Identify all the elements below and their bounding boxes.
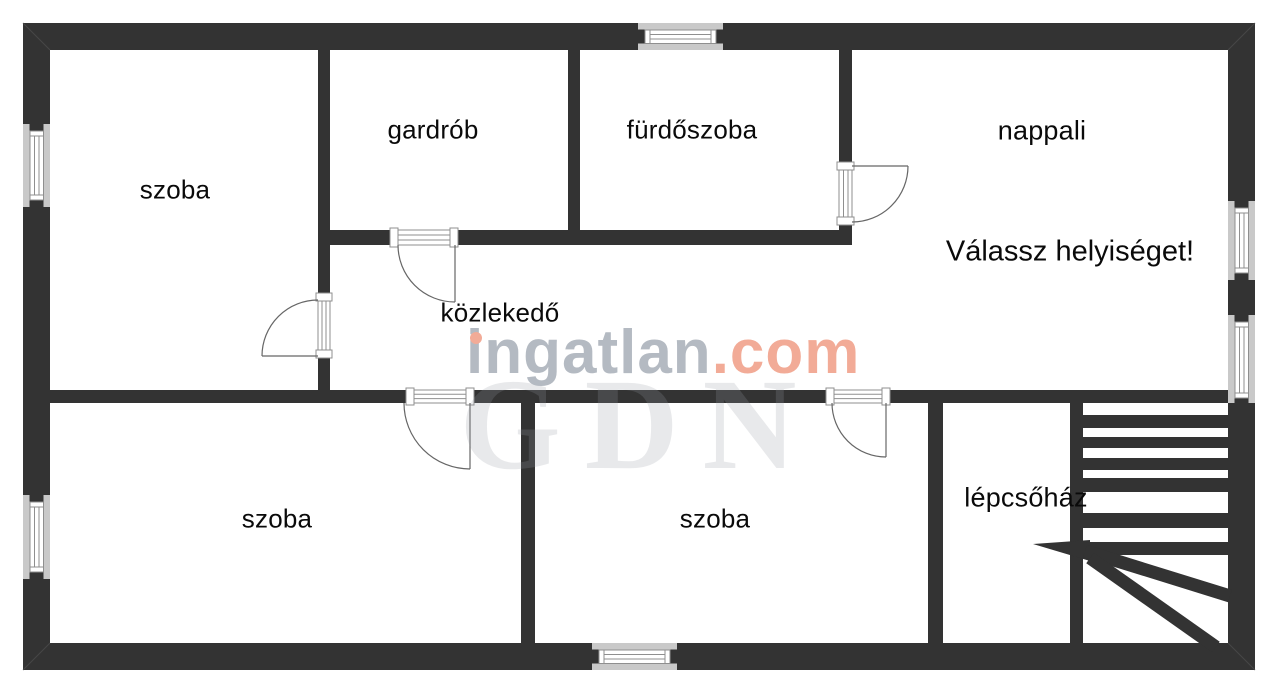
door-frame bbox=[406, 388, 474, 405]
window-icon bbox=[638, 23, 723, 50]
floorplan-drawing bbox=[0, 0, 1280, 695]
choose-room-prompt: Válassz helyiséget! bbox=[946, 236, 1194, 269]
room-label-szoba-bottom-middle[interactable]: szoba bbox=[680, 504, 750, 535]
door-frame bbox=[316, 293, 332, 358]
staircase-icon bbox=[1033, 415, 1230, 647]
door-frame bbox=[826, 388, 890, 405]
room-label-gardrob[interactable]: gardrób bbox=[387, 115, 478, 146]
window-icon bbox=[1228, 315, 1255, 403]
window-icon bbox=[592, 643, 677, 670]
door-frame bbox=[837, 162, 854, 225]
door-swing-arcs bbox=[262, 166, 908, 469]
window-icon bbox=[23, 124, 50, 207]
window-icon bbox=[23, 495, 50, 579]
room-label-szoba-top-left[interactable]: szoba bbox=[140, 175, 210, 206]
room-label-kozlekedo[interactable]: közlekedő bbox=[441, 298, 560, 329]
room-label-furdoszoba[interactable]: fürdőszoba bbox=[627, 115, 758, 146]
room-label-szoba-bottom-left[interactable]: szoba bbox=[242, 504, 312, 535]
room-label-nappali[interactable]: nappali bbox=[998, 116, 1086, 147]
floorplan: GDN ingatlan.com szoba gardrób fürdőszob… bbox=[0, 0, 1280, 695]
room-label-lepcsohaz[interactable]: lépcsőház bbox=[964, 483, 1087, 514]
door-frame bbox=[390, 228, 458, 247]
window-icon bbox=[1228, 201, 1255, 280]
